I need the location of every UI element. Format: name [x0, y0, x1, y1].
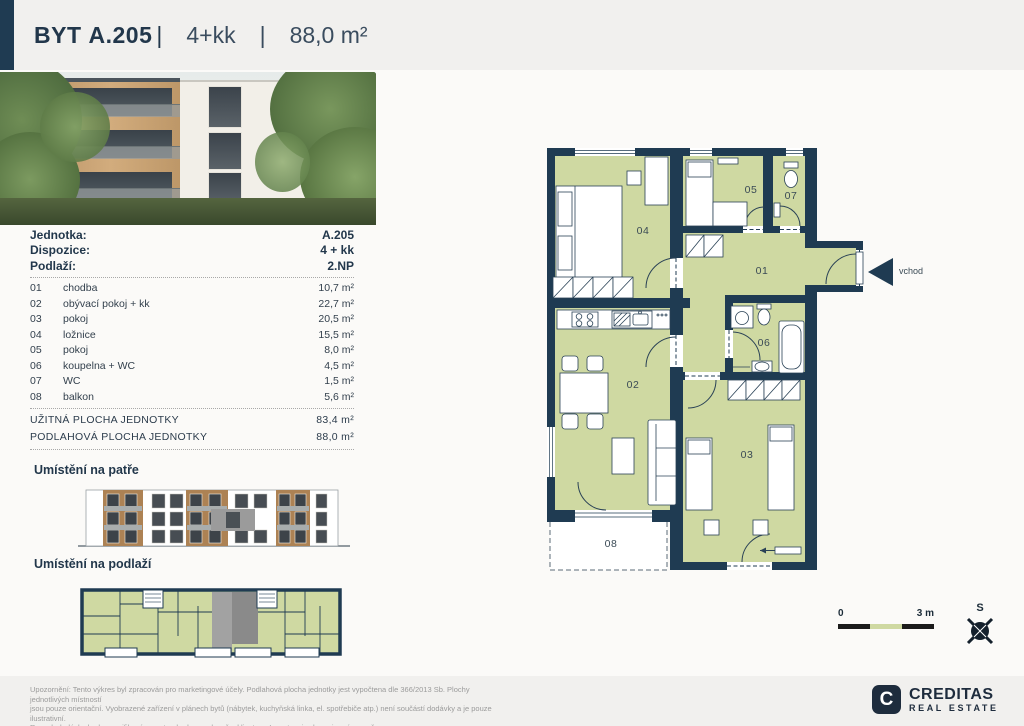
room-area: 1,5 m²	[324, 375, 354, 387]
disclaimer-line: jsou pouze orientační. Vyobrazené zaříze…	[30, 704, 510, 723]
plan-room-label-08: 08	[605, 538, 618, 550]
elevation-drawing	[78, 486, 350, 560]
photo-hedge	[0, 198, 376, 225]
divider	[30, 408, 354, 409]
room-name: chodba	[63, 282, 318, 294]
room-row: 03pokoj20,5 m²	[30, 312, 354, 328]
disclaimer: Upozornění: Tento výkres byl zpracován p…	[30, 685, 510, 726]
unit-number: A.205	[89, 22, 153, 49]
room-area: 8,0 m²	[324, 344, 354, 356]
room-name: ložnice	[63, 329, 318, 341]
total-value: 88,0 m²	[316, 431, 354, 443]
unit-area: 88,0 m²	[290, 22, 368, 49]
room-number: 08	[30, 391, 63, 403]
floor-layout-drawing	[58, 586, 346, 664]
scale-segment	[870, 624, 902, 629]
plan-room-label-03: 03	[741, 449, 754, 461]
info-row: Podlaží:2.NP	[30, 258, 354, 274]
apartment-sheet: BYT A.205 | 4+kk | 88,0 m² NOVÁ VALCHA	[0, 0, 1024, 726]
room-number: 07	[30, 375, 63, 387]
room-area: 15,5 m²	[318, 329, 354, 341]
plan-room-label-01: 01	[756, 265, 769, 277]
header-bar: BYT A.205 | 4+kk | 88,0 m² NOVÁ VALCHA	[0, 0, 1024, 70]
separator: |	[260, 22, 266, 49]
plan-room-label-04: 04	[637, 225, 650, 237]
section-plan-location: Umístění na podlaží	[34, 557, 151, 571]
room-row: 07WC1,5 m²	[30, 374, 354, 390]
total-label: UŽITNÁ PLOCHA JEDNOTKY	[30, 414, 179, 426]
room-number: 02	[30, 298, 63, 310]
room-number: 01	[30, 282, 63, 294]
info-row: Dispozice:4 + kk	[30, 243, 354, 259]
creditas-logo: C CREDITAS REAL ESTATE	[872, 685, 999, 714]
entrance-label: vchod	[899, 266, 923, 276]
room-area: 4,5 m²	[324, 360, 354, 372]
building-photo	[0, 72, 376, 225]
page-title: BYT A.205 | 4+kk | 88,0 m²	[34, 0, 368, 70]
room-number: 04	[30, 329, 63, 341]
room-row: 05pokoj8,0 m²	[30, 343, 354, 359]
unit-type-label: BYT	[34, 22, 82, 49]
info-value: 4 + kk	[320, 243, 354, 257]
separator: |	[156, 22, 162, 49]
info-value: A.205	[322, 228, 354, 242]
scale-max: 3 m	[917, 608, 934, 621]
entrance-arrow-icon	[868, 258, 893, 286]
plan-room-label-06: 06	[758, 337, 771, 349]
room-row: 08balkon5,6 m²	[30, 389, 354, 405]
plan-room-label-05: 05	[745, 184, 758, 196]
tree-foliage	[40, 92, 110, 162]
compass-north-label: S	[962, 602, 998, 614]
info-row: Jednotka:A.205	[30, 227, 354, 243]
room-row: 02obývací pokoj + kk22,7 m²	[30, 296, 354, 312]
info-label: Dispozice:	[30, 243, 90, 257]
scale-bar: 0 3 m	[838, 608, 934, 629]
scale-segment	[838, 624, 870, 629]
room-area: 10,7 m²	[318, 282, 354, 294]
unit-details: Jednotka:A.205 Dispozice:4 + kk Podlaží:…	[30, 227, 354, 453]
scale-segment	[902, 624, 934, 629]
room-row: 06koupelna + WC4,5 m²	[30, 358, 354, 374]
creditas-icon: C	[872, 685, 901, 714]
section-floor-location: Umístění na patře	[34, 463, 139, 477]
divider	[30, 449, 354, 450]
room-area: 20,5 m²	[318, 313, 354, 325]
total-value: 83,4 m²	[316, 414, 354, 426]
apartment-floorplan	[540, 128, 910, 600]
photo-window	[208, 132, 242, 170]
total-label: PODLAHOVÁ PLOCHA JEDNOTKY	[30, 431, 207, 443]
unit-layout: 4+kk	[186, 22, 235, 49]
scale-zero: 0	[838, 608, 844, 621]
compass: S	[962, 602, 998, 651]
tree-foliage	[255, 132, 310, 192]
plan-room-label-07: 07	[785, 190, 798, 202]
info-label: Jednotka:	[30, 228, 87, 242]
room-name: pokoj	[63, 344, 324, 356]
room-number: 03	[30, 313, 63, 325]
layout-unit-highlight	[212, 592, 232, 652]
room-number: 05	[30, 344, 63, 356]
room-name: koupelna + WC	[63, 360, 324, 372]
room-name: WC	[63, 375, 324, 387]
room-number: 06	[30, 360, 63, 372]
plan-room-label-02: 02	[627, 379, 640, 391]
footer-bar: Upozornění: Tento výkres byl zpracován p…	[0, 676, 1024, 726]
disclaimer-line: Upozornění: Tento výkres byl zpracován p…	[30, 685, 510, 704]
room-area: 5,6 m²	[324, 391, 354, 403]
divider	[30, 277, 354, 278]
room-name: balkon	[63, 391, 324, 403]
corner-accent	[0, 0, 14, 70]
total-row: PODLAHOVÁ PLOCHA JEDNOTKY88,0 m²	[30, 429, 354, 446]
room-name: pokoj	[63, 313, 318, 325]
compass-icon	[963, 614, 997, 648]
total-row: UŽITNÁ PLOCHA JEDNOTKY83,4 m²	[30, 412, 354, 429]
room-row: 01chodba10,7 m²	[30, 281, 354, 297]
info-label: Podlaží:	[30, 259, 76, 273]
room-row: 04ložnice15,5 m²	[30, 327, 354, 343]
room-name: obývací pokoj + kk	[63, 298, 318, 310]
creditas-name: CREDITAS	[909, 687, 999, 703]
info-value: 2.NP	[327, 259, 354, 273]
creditas-subtitle: REAL ESTATE	[909, 703, 999, 713]
room-area: 22,7 m²	[318, 298, 354, 310]
layout-unit-highlight	[232, 592, 258, 644]
photo-window	[208, 86, 242, 128]
